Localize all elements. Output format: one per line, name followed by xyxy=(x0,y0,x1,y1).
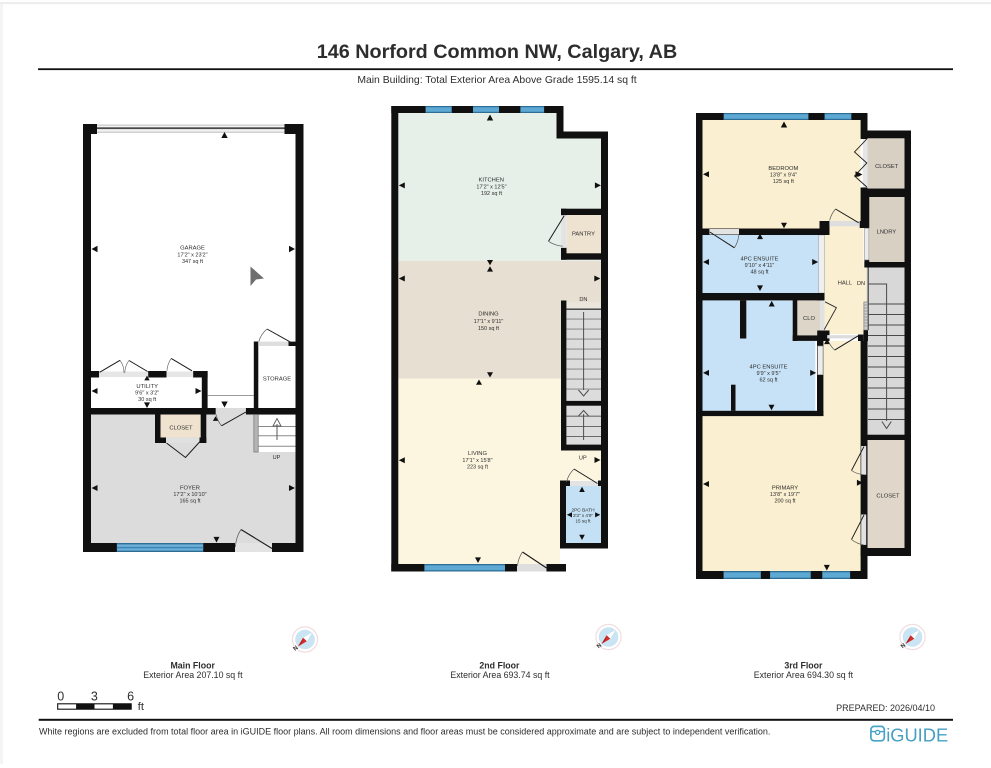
svg-text:200 sq ft: 200 sq ft xyxy=(774,498,796,504)
svg-text:LNDRY: LNDRY xyxy=(877,230,897,236)
svg-text:CLOSET: CLOSET xyxy=(169,426,193,432)
svg-text:PRIMARY: PRIMARY xyxy=(772,485,798,491)
svg-text:30 sq ft: 30 sq ft xyxy=(138,397,157,403)
svg-text:Exterior Area 694.30 sq ft: Exterior Area 694.30 sq ft xyxy=(754,670,854,680)
svg-text:15 sq ft: 15 sq ft xyxy=(575,518,591,523)
svg-text:PREPARED: 2026/04/10: PREPARED: 2026/04/10 xyxy=(836,703,935,713)
svg-text:165 sq ft: 165 sq ft xyxy=(179,498,201,504)
svg-text:146 Norford Common NW, Calgary: 146 Norford Common NW, Calgary, AB xyxy=(317,41,678,63)
svg-text:BEDROOM: BEDROOM xyxy=(768,166,798,172)
svg-text:150 sq ft: 150 sq ft xyxy=(478,326,500,332)
svg-text:17'1" x 15'8": 17'1" x 15'8" xyxy=(462,458,492,464)
svg-text:UP: UP xyxy=(579,456,587,462)
svg-text:4PC ENSUITE: 4PC ENSUITE xyxy=(740,256,778,262)
svg-text:3: 3 xyxy=(91,690,98,704)
svg-text:17'2" x 12'5": 17'2" x 12'5" xyxy=(476,185,506,191)
svg-text:17'1" x 9'11": 17'1" x 9'11" xyxy=(474,319,504,325)
svg-text:9'9" x 9'5": 9'9" x 9'5" xyxy=(756,371,780,377)
svg-text:9'6" x 3'2": 9'6" x 3'2" xyxy=(135,391,159,397)
svg-text:CLOSET: CLOSET xyxy=(875,164,899,170)
svg-text:3'3" x 4'9": 3'3" x 4'9" xyxy=(573,513,593,518)
svg-text:4PC ENSUITE: 4PC ENSUITE xyxy=(749,365,787,371)
svg-text:17'2" x 10'10": 17'2" x 10'10" xyxy=(173,492,206,498)
svg-text:17'2" x 23'2": 17'2" x 23'2" xyxy=(177,253,207,259)
svg-text:DINING: DINING xyxy=(478,312,499,318)
svg-text:UP: UP xyxy=(273,455,281,461)
svg-text:ft: ft xyxy=(138,701,144,713)
svg-text:LIVING: LIVING xyxy=(468,451,487,457)
svg-text:347 sq ft: 347 sq ft xyxy=(182,259,204,265)
svg-text:6: 6 xyxy=(127,690,134,704)
svg-text:192 sq ft: 192 sq ft xyxy=(481,191,503,197)
svg-text:Main Building: Total Exterior: Main Building: Total Exterior Area Above… xyxy=(357,75,636,86)
svg-text:DN: DN xyxy=(857,281,865,287)
svg-text:CLO: CLO xyxy=(803,316,815,322)
svg-text:13'8" x 9'4": 13'8" x 9'4" xyxy=(770,173,797,179)
svg-text:Exterior Area 207.10 sq ft: Exterior Area 207.10 sq ft xyxy=(143,670,243,680)
svg-text:FOYER: FOYER xyxy=(180,485,200,491)
svg-text:UTILITY: UTILITY xyxy=(136,384,158,390)
svg-text:0: 0 xyxy=(57,690,64,704)
svg-text:CLOSET: CLOSET xyxy=(876,493,900,499)
svg-text:STORAGE: STORAGE xyxy=(263,377,291,383)
svg-text:White regions are excluded fro: White regions are excluded from total fl… xyxy=(39,727,770,737)
svg-text:GARAGE: GARAGE xyxy=(180,246,205,252)
svg-text:13'8" x 19'7": 13'8" x 19'7" xyxy=(770,492,800,498)
svg-text:48 sq ft: 48 sq ft xyxy=(750,270,769,276)
svg-text:iGUIDE: iGUIDE xyxy=(886,725,948,746)
svg-text:PANTRY: PANTRY xyxy=(572,232,595,238)
svg-text:9'10" x 4'11": 9'10" x 4'11" xyxy=(745,263,775,269)
svg-text:125 sq ft: 125 sq ft xyxy=(773,179,795,185)
svg-text:223 sq ft: 223 sq ft xyxy=(467,465,489,471)
svg-text:Exterior Area 693.74 sq ft: Exterior Area 693.74 sq ft xyxy=(450,670,550,680)
svg-text:DN: DN xyxy=(579,297,587,303)
svg-text:62 sq ft: 62 sq ft xyxy=(759,377,778,383)
svg-text:KITCHEN: KITCHEN xyxy=(478,178,503,184)
svg-text:HALL: HALL xyxy=(838,281,853,287)
